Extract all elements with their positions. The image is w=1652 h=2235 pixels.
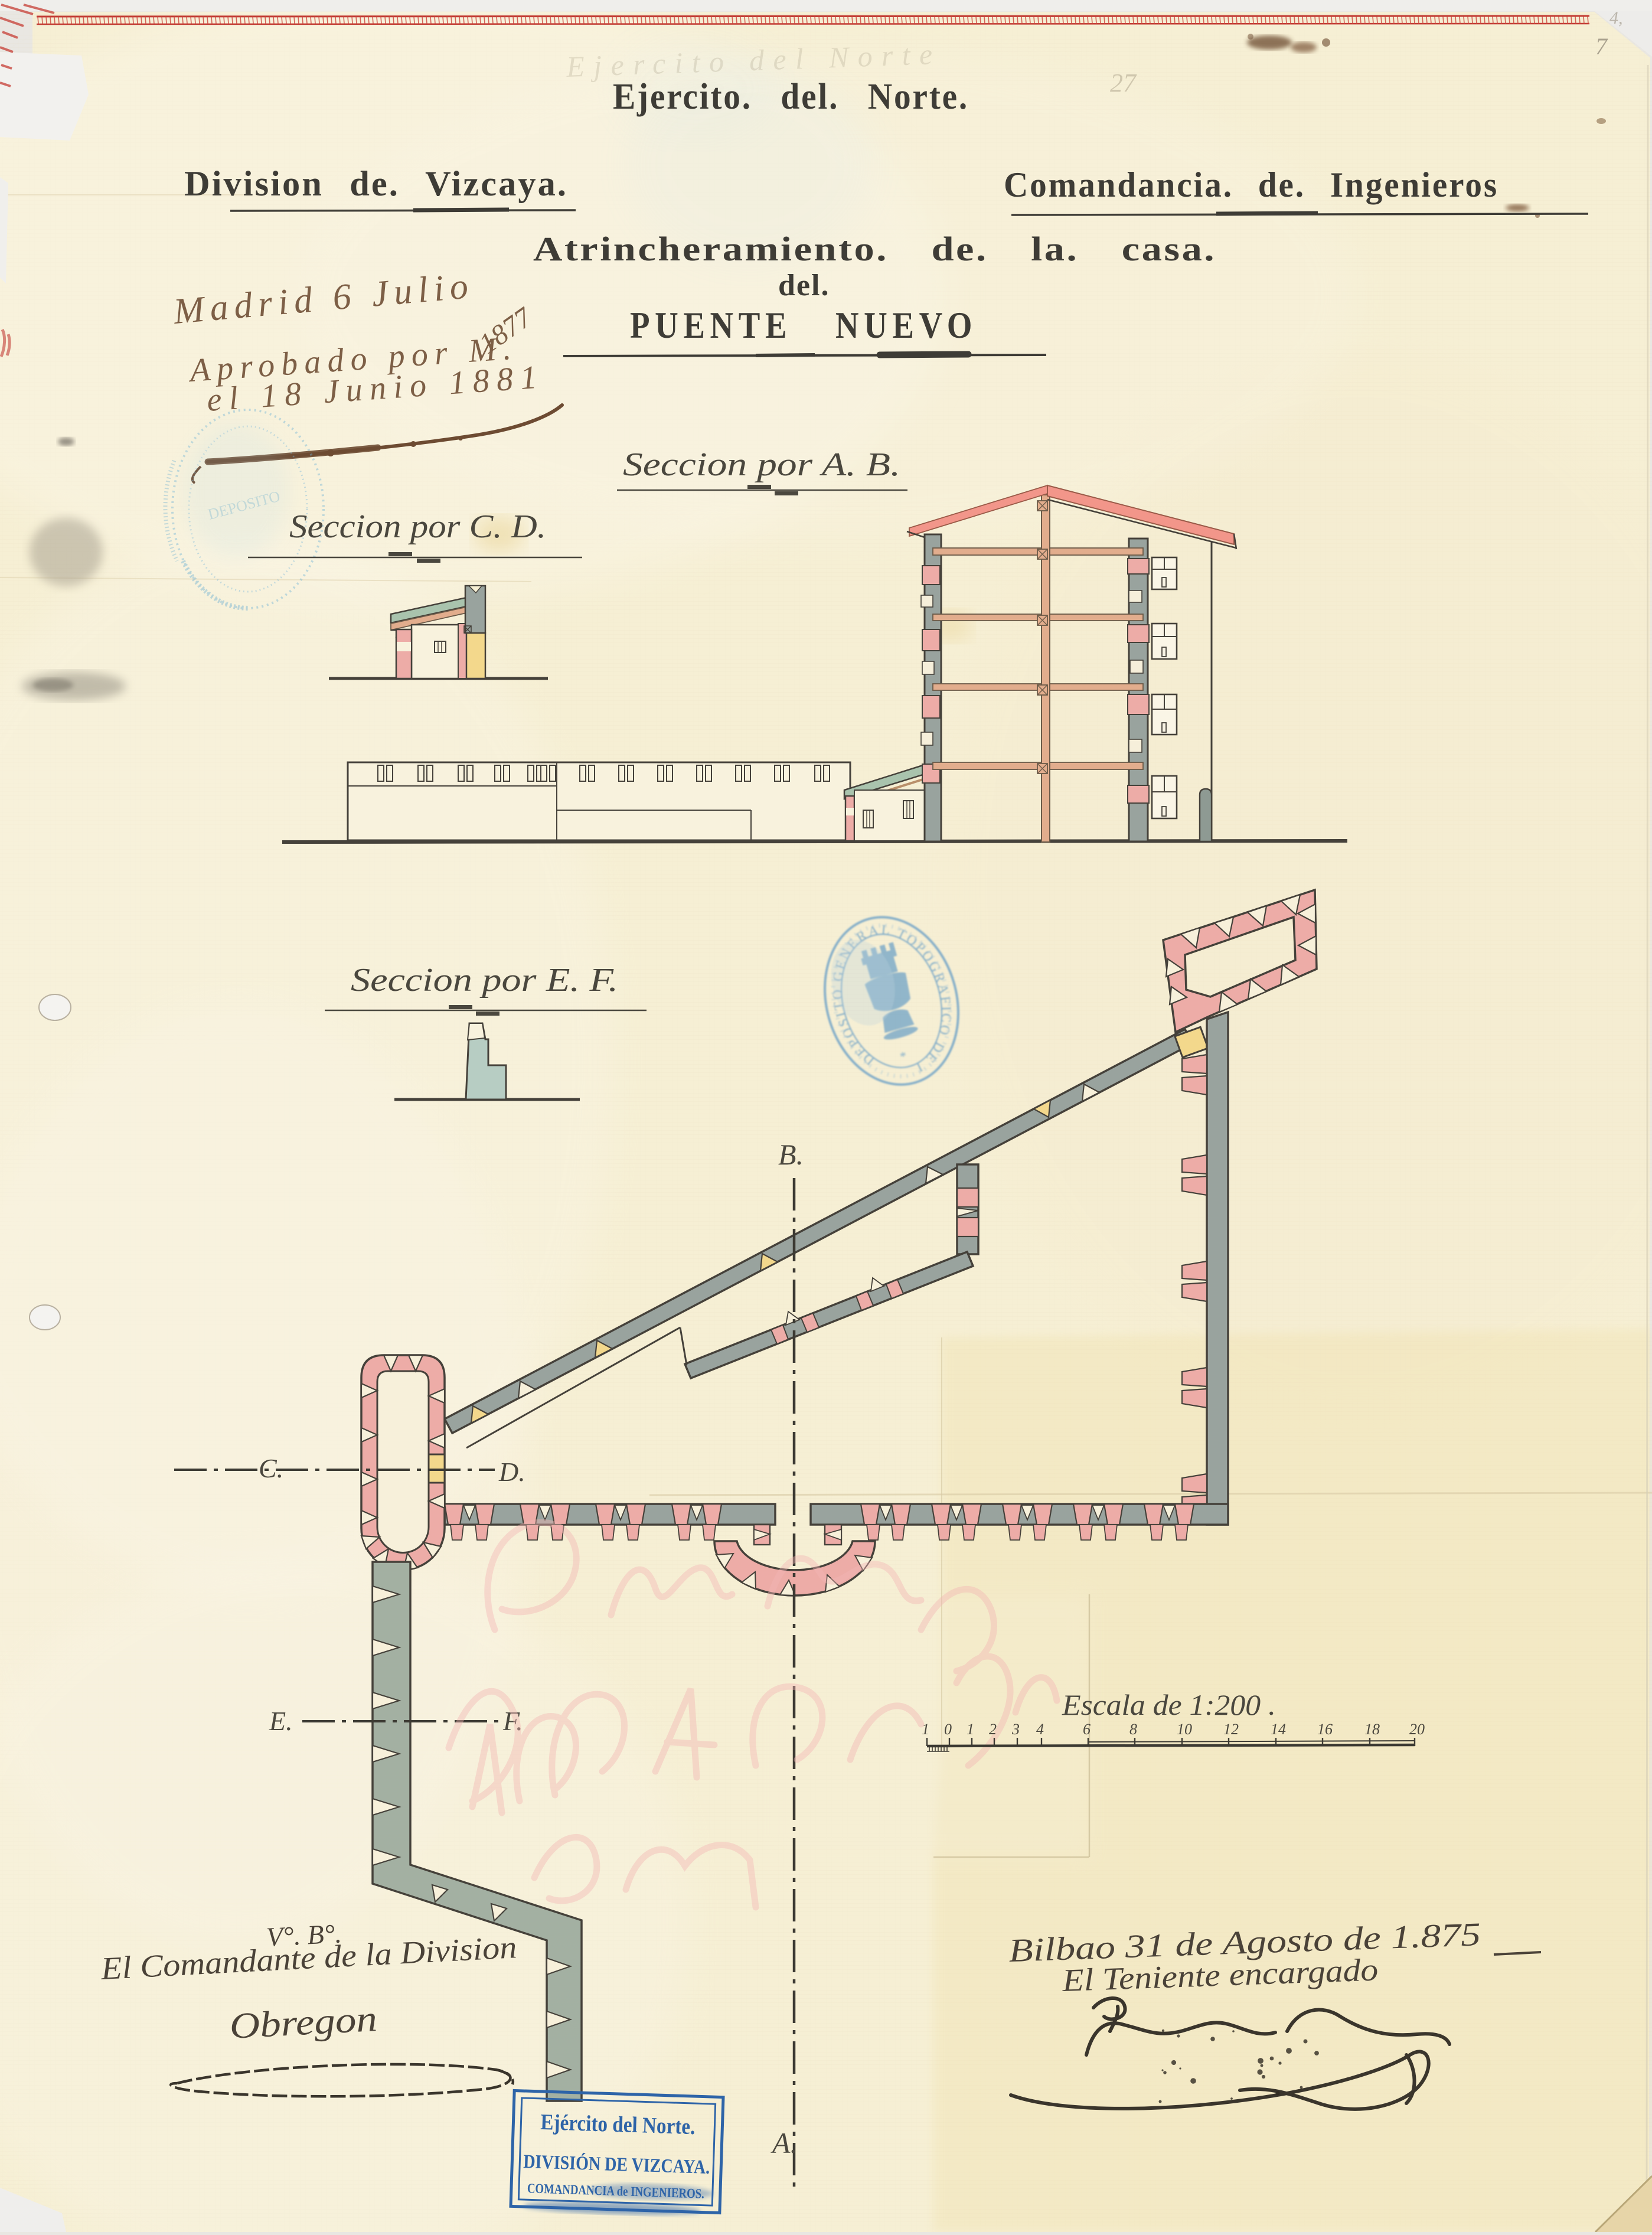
svg-text:20: 20 [1409,1721,1425,1738]
svg-text:Seccion por E. F.: Seccion por E. F. [351,962,618,999]
svg-text:1: 1 [967,1721,974,1738]
svg-text:0: 0 [944,1721,952,1738]
svg-text:4: 4 [1036,1721,1044,1738]
svg-text:Ejército del Norte.: Ejército del Norte. [540,2110,696,2139]
svg-text:Division de. Vizcaya.: Division de. Vizcaya. [184,164,568,203]
svg-text:1: 1 [922,1721,929,1738]
svg-text:PUENTE NUEVO: PUENTE NUEVO [630,304,977,346]
svg-text:D.: D. [498,1457,525,1487]
svg-text:27: 27 [1110,68,1137,97]
svg-text:Obregon: Obregon [228,1999,378,2047]
svg-text:E.: E. [269,1706,293,1736]
svg-text:10: 10 [1177,1721,1192,1738]
svg-text:Ejercito. del. Norte.: Ejercito. del. Norte. [613,77,969,117]
svg-text:12: 12 [1223,1721,1239,1738]
svg-text:Escala de 1:200 .: Escala de 1:200 . [1062,1688,1276,1721]
svg-text:3: 3 [1011,1721,1020,1738]
svg-text:4,: 4, [1609,8,1623,28]
svg-text:16: 16 [1317,1721,1333,1738]
svg-text:C.: C. [259,1453,283,1483]
svg-text:Comandancia. de. Ingenieros: Comandancia. de. Ingenieros [1004,165,1498,204]
svg-text:Seccion por C. D.: Seccion por C. D. [289,508,546,545]
svg-text:18: 18 [1364,1721,1380,1738]
svg-text:8: 8 [1129,1721,1137,1738]
svg-text:7: 7 [1595,33,1608,60]
svg-text:del.: del. [778,269,830,302]
svg-text:2: 2 [989,1721,997,1738]
svg-text:6: 6 [1083,1721,1091,1738]
svg-text:A.: A. [771,2126,798,2159]
svg-text:B.: B. [778,1138,804,1171]
svg-text:Atrincheramiento. de. la. casa: Atrincheramiento. de. la. casa. [533,230,1216,268]
svg-text:Seccion por A. B.: Seccion por A. B. [623,446,900,483]
svg-text:14: 14 [1271,1721,1286,1738]
